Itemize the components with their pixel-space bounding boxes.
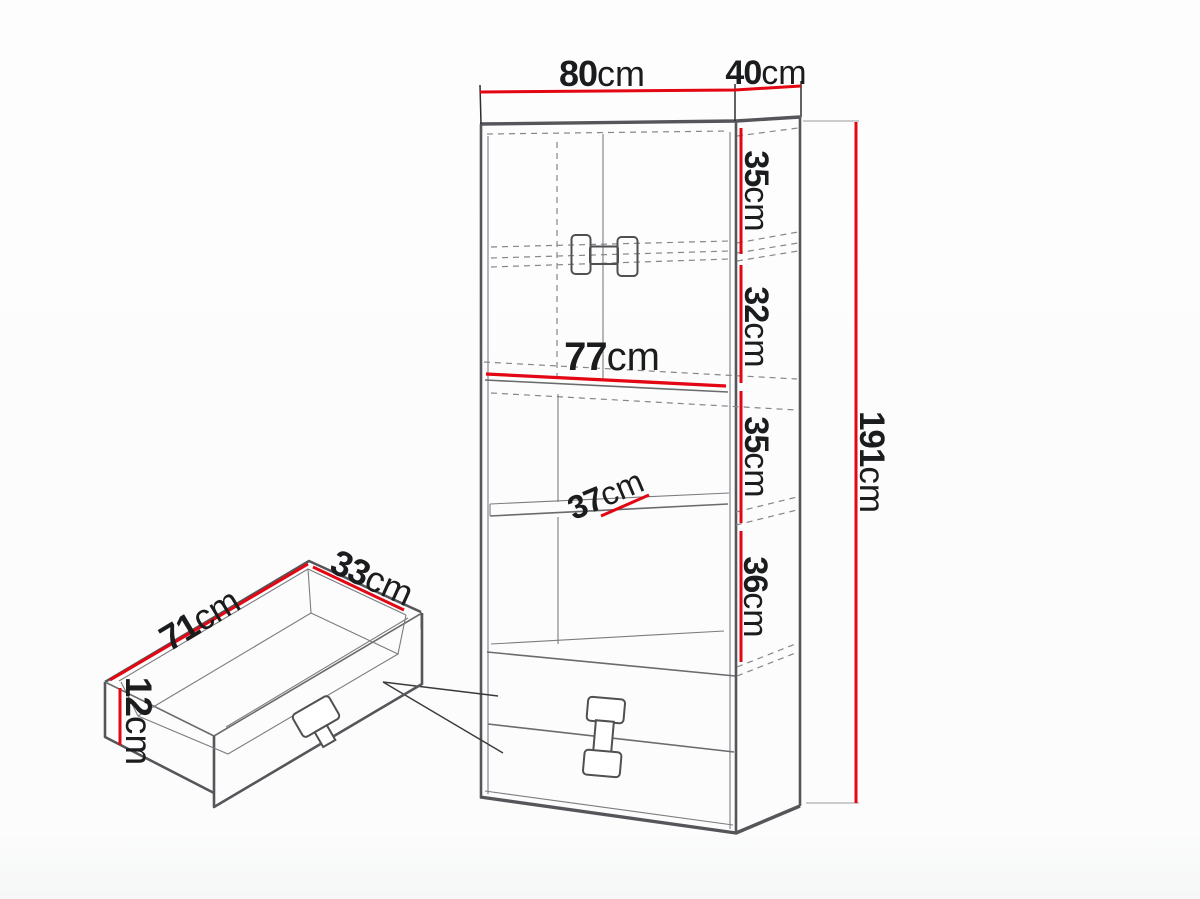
hidden-shelf-side-dashed-2	[737, 243, 798, 253]
left-door-handle	[572, 235, 591, 274]
cabinet-top-edge	[480, 117, 800, 124]
top-drawer-handle	[586, 696, 625, 723]
leader-line-bottom-drawer	[383, 682, 503, 753]
cabinet-top-inner-dashed	[487, 131, 729, 134]
inner-width-label: 77cm	[564, 335, 660, 379]
cabinet-bottom-edge	[480, 797, 800, 833]
shelf-depth-label: 37cm	[562, 462, 649, 527]
shelf37-side-dashed-2	[736, 510, 797, 525]
diagram-canvas: 80cm 40cm 191cm 35cm 32cm 35cm 36cm 77cm…	[0, 0, 1200, 899]
section-4-label: 36cm	[736, 556, 774, 637]
hidden-shelf-side-dashed-3	[737, 251, 798, 261]
drawer-handles	[582, 696, 627, 777]
height-dimension: 191cm	[803, 121, 891, 803]
top-dimensions: 80cm 40cm	[480, 53, 807, 124]
middle-shelf-dashed-bottom	[491, 393, 797, 410]
drawer-section-top-edge	[487, 652, 735, 676]
bottom-shelf-side-dashed-2	[737, 652, 798, 676]
cabinet-depth-label: 40cm	[725, 54, 806, 92]
bottom-shelf-back-edge	[491, 631, 724, 644]
drawer-length-label: 71cm	[152, 580, 247, 659]
drawer-depth-label: 33cm	[325, 541, 420, 614]
drawer-detail: 71cm 33cm 12cm	[105, 541, 422, 807]
drawer-height-label: 12cm	[118, 677, 159, 765]
cabinet-bottom-inner-line	[485, 791, 733, 825]
hidden-shelf-side-dashed-1	[737, 232, 798, 243]
section-1-label: 35cm	[737, 150, 775, 231]
drawer-fronts	[488, 696, 734, 777]
drawer-inner-corner-right	[398, 615, 406, 654]
drawer-inner-corner-back	[308, 569, 311, 613]
middle-shelf-front-edge	[485, 380, 728, 392]
cabinet-height-label: 191cm	[852, 411, 891, 513]
cabinet-width-label: 80cm	[559, 53, 645, 94]
dimension-diagram: 80cm 40cm 191cm 35cm 32cm 35cm 36cm 77cm…	[0, 0, 1200, 899]
bottom-drawer-handle	[583, 749, 622, 777]
section-3-label: 35cm	[737, 416, 775, 497]
section-2-label: 32cm	[737, 286, 775, 367]
section-dimensions: 35cm 32cm 35cm 36cm	[736, 128, 775, 662]
side-top-dashed	[737, 128, 798, 136]
drawer-handle-stem	[593, 720, 614, 752]
shelf37-side-dashed-1	[736, 497, 797, 512]
hidden-shelf-dashed-2	[491, 251, 730, 258]
